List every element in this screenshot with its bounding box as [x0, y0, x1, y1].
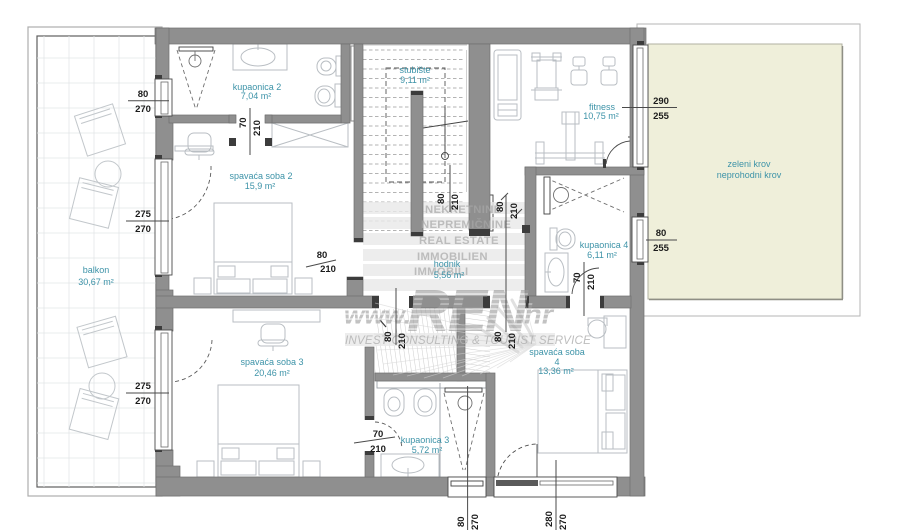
svg-text:80: 80 — [317, 250, 328, 261]
svg-text:spavaća soba 3: spavaća soba 3 — [240, 357, 303, 367]
svg-text:270: 270 — [135, 104, 151, 115]
svg-text:.hr: .hr — [516, 299, 555, 331]
svg-text:270: 270 — [135, 224, 151, 235]
svg-text:210: 210 — [586, 274, 597, 290]
svg-text:15,9 m²: 15,9 m² — [245, 181, 276, 191]
svg-text:5,56 m²: 5,56 m² — [434, 270, 465, 280]
svg-text:zeleni krov: zeleni krov — [727, 159, 771, 169]
svg-text:7,04 m²: 7,04 m² — [241, 91, 272, 101]
svg-text:70: 70 — [572, 272, 583, 283]
svg-text:80: 80 — [495, 201, 506, 212]
svg-text:spavaća soba: spavaća soba — [529, 347, 585, 357]
svg-text:kupaonica 3: kupaonica 3 — [401, 435, 450, 445]
svg-text:275: 275 — [135, 209, 152, 220]
svg-text:www.: www. — [344, 300, 411, 330]
svg-text:spavaća soba 2: spavaća soba 2 — [229, 171, 292, 181]
svg-text:INVEST CONSULTING & TOURIST SE: INVEST CONSULTING & TOURIST SERVICE — [345, 334, 591, 347]
svg-text:13,36 m²: 13,36 m² — [538, 366, 574, 376]
svg-text:REAL ESTATE: REAL ESTATE — [419, 235, 499, 247]
svg-text:balkon: balkon — [83, 265, 110, 275]
svg-text:9,11 m²: 9,11 m² — [400, 75, 430, 85]
svg-text:270: 270 — [470, 514, 481, 530]
svg-text:NEPREMIČNINE: NEPREMIČNINE — [421, 218, 511, 231]
svg-text:80: 80 — [383, 331, 394, 342]
svg-text:neprohodni krov: neprohodni krov — [717, 170, 782, 180]
svg-text:210: 210 — [450, 194, 461, 210]
svg-text:NEKRETNINE: NEKRETNINE — [425, 204, 502, 216]
svg-text:80: 80 — [456, 516, 467, 527]
svg-text:290: 290 — [653, 96, 669, 107]
svg-text:270: 270 — [135, 396, 151, 407]
svg-text:270: 270 — [558, 514, 569, 530]
svg-text:hodnik: hodnik — [434, 259, 461, 269]
svg-text:275: 275 — [135, 381, 152, 392]
svg-text:kupaonica 4: kupaonica 4 — [580, 240, 629, 250]
svg-text:5,72 m²: 5,72 m² — [412, 445, 443, 455]
svg-text:210: 210 — [397, 333, 408, 349]
svg-text:280: 280 — [544, 511, 555, 527]
svg-text:210: 210 — [370, 444, 386, 455]
svg-text:210: 210 — [507, 333, 518, 349]
svg-text:80: 80 — [493, 331, 504, 342]
svg-text:255: 255 — [653, 111, 670, 122]
svg-text:70: 70 — [373, 429, 384, 440]
svg-text:210: 210 — [509, 203, 520, 219]
svg-text:80: 80 — [436, 193, 447, 204]
svg-text:stubište: stubište — [399, 65, 430, 75]
svg-text:70: 70 — [238, 117, 249, 128]
svg-text:6,11 m²: 6,11 m² — [587, 250, 617, 260]
svg-text:80: 80 — [656, 228, 667, 239]
svg-text:10,75 m²: 10,75 m² — [583, 111, 619, 121]
svg-text:30,67 m²: 30,67 m² — [78, 277, 114, 287]
svg-text:210: 210 — [320, 264, 336, 275]
svg-text:255: 255 — [653, 243, 670, 254]
svg-text:80: 80 — [138, 89, 149, 100]
svg-text:210: 210 — [252, 120, 263, 136]
svg-text:20,46 m²: 20,46 m² — [254, 368, 290, 378]
